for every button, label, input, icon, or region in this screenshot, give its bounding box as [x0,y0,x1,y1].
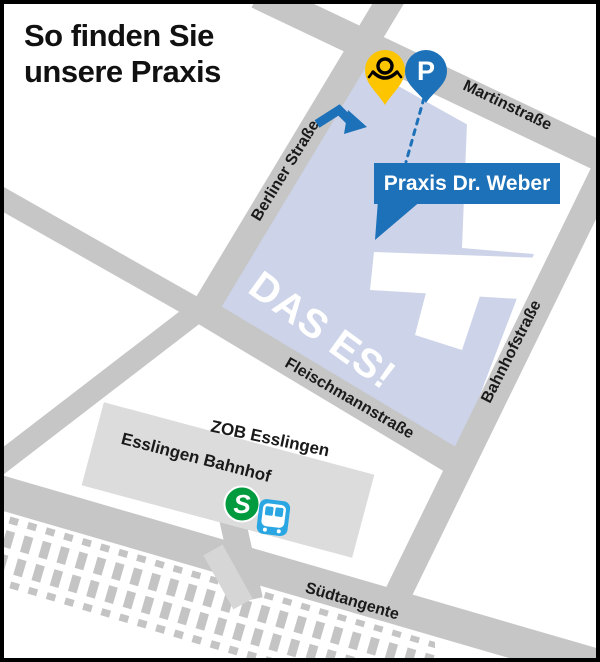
train-icon [256,498,291,537]
title-line-2: unsere Praxis [24,54,221,90]
title-line-1: So finden Sie [24,18,221,54]
map-canvas: S [0,0,600,662]
sbahn-logo-icon: S [225,487,260,522]
street-west [0,193,202,312]
page-title: So finden Sie unsere Praxis [24,18,221,90]
sbahn-letter: S [233,489,251,519]
praxis-bubble: Praxis Dr. Weber [374,163,560,204]
parking-letter: P [417,56,435,86]
